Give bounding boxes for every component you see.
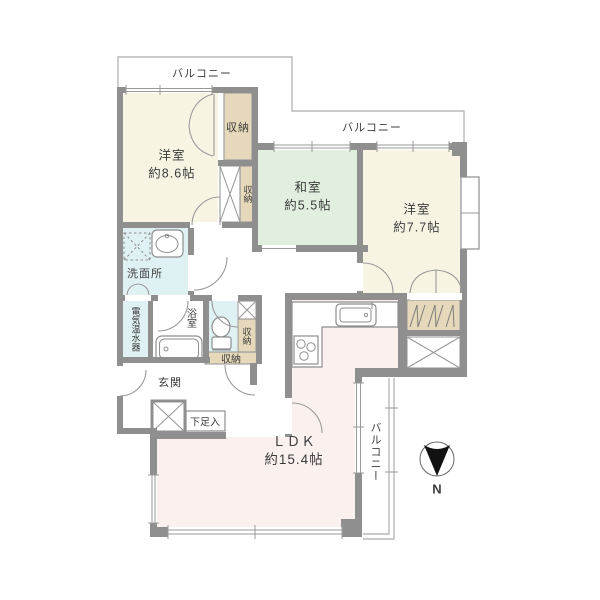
balcony-top-right-label: バルコニー — [342, 119, 402, 135]
japanese-room-label: 和室 約5.5帖 — [284, 180, 331, 215]
compass — [420, 442, 454, 476]
western-room-7-7-label: 洋室 約7.7帖 — [393, 202, 440, 237]
western-room-8-6-label: 洋室 約8.6帖 — [148, 148, 195, 183]
balcony-right-ticks — [385, 408, 398, 472]
toilet-icon — [212, 317, 231, 350]
bathroom-label: 浴室 — [183, 308, 198, 328]
western-room-7-7-size: 約7.7帖 — [393, 219, 440, 237]
western-room-8-6-name: 洋室 — [148, 148, 195, 166]
closet-top-label: 収納 — [226, 119, 250, 135]
window-ldk-south — [168, 525, 342, 539]
shoe-box-label: 下足入 — [190, 414, 220, 429]
kitchen-sink-icon — [336, 302, 376, 326]
pipe-shaft-entrance — [152, 401, 185, 432]
japanese-room-size: 約5.5帖 — [284, 197, 331, 215]
water-heater-label: 電気温水器 — [130, 307, 143, 352]
western-room-8-6-size: 約8.6帖 — [148, 165, 195, 183]
closet-wc-label: 収納 — [241, 327, 254, 345]
ldk-label: ＬＤＫ 約15.4帖 — [264, 433, 323, 469]
balcony-right-label: バルコニー — [367, 422, 383, 482]
compass-n-label: N — [432, 482, 441, 497]
room-ldk-main — [157, 437, 362, 527]
ldk-name: ＬＤＫ — [264, 433, 323, 451]
window-western-7-7-east — [460, 177, 479, 249]
closet-hall-label: 収納 — [221, 351, 241, 366]
closet-accordion-fill — [407, 300, 460, 333]
stove-icon — [294, 336, 318, 364]
washroom-label: 洗面所 — [127, 265, 163, 281]
japanese-room-name: 和室 — [284, 180, 331, 198]
balcony-top-left-label: バルコニー — [172, 65, 232, 81]
washroom-sink-icon — [152, 230, 183, 257]
entrance-label: 玄関 — [158, 374, 182, 390]
western-room-7-7-name: 洋室 — [393, 202, 440, 220]
ldk-size: 約15.4帖 — [264, 451, 323, 469]
floorplan-drawing — [0, 0, 600, 600]
floorplan-canvas: バルコニー バルコニー バルコニー 洋室 約8.6帖 和室 約5.5帖 洋室 約… — [0, 0, 600, 600]
closet-mid-label: 収納 — [242, 185, 255, 203]
